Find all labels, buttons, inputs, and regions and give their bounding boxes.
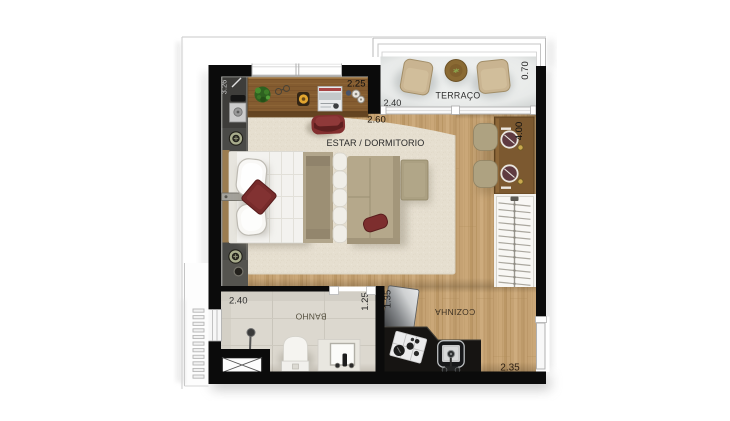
svg-text:BANHO: BANHO — [295, 312, 326, 322]
svg-text:4.00: 4.00 — [514, 122, 525, 141]
svg-text:2.60: 2.60 — [367, 115, 386, 126]
svg-text:0.70: 0.70 — [520, 61, 531, 80]
svg-text:1.25: 1.25 — [360, 292, 371, 311]
svg-text:2.25: 2.25 — [347, 79, 366, 90]
svg-text:ESTAR / DORMITORIO: ESTAR / DORMITORIO — [327, 138, 425, 148]
svg-text:TERRAÇO: TERRAÇO — [435, 91, 480, 101]
svg-text:COZINHA: COZINHA — [435, 307, 475, 317]
svg-text:2.40: 2.40 — [229, 296, 248, 307]
